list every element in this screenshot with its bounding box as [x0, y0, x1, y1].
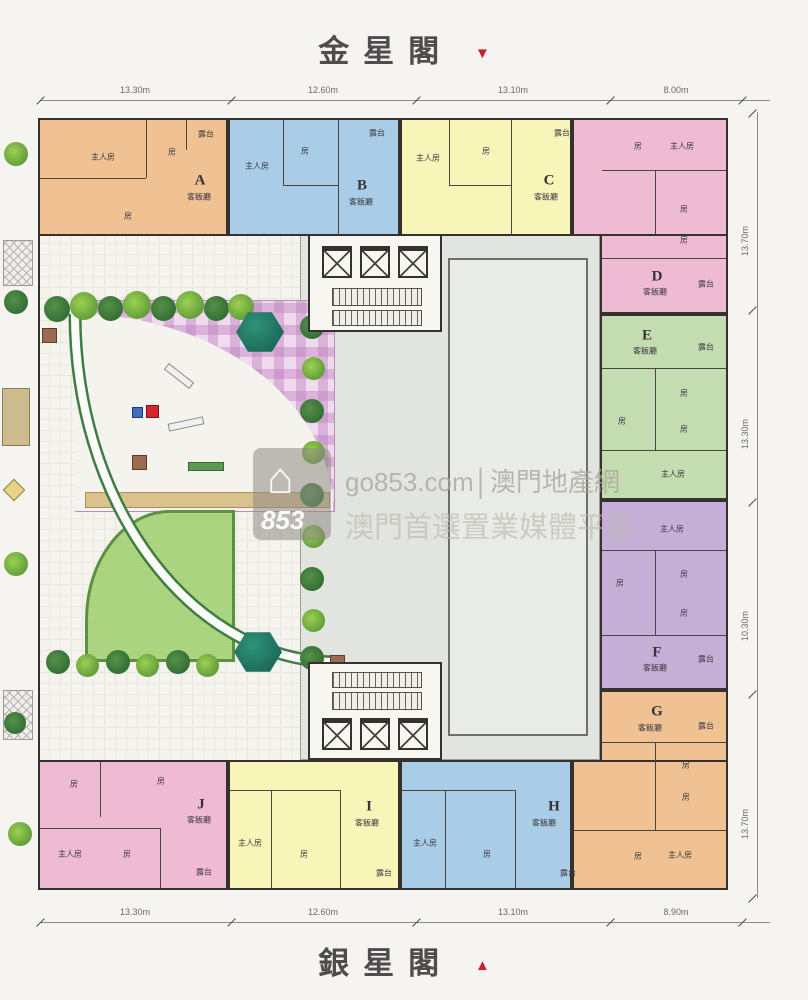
room-label: 客飯廳: [355, 818, 379, 829]
wall: [602, 550, 726, 551]
dim-right-3: 10.30m: [740, 611, 750, 641]
top-title-text: 金星閣: [318, 34, 453, 69]
lift-core-top: [308, 234, 442, 332]
tree: [302, 357, 325, 380]
wall: [602, 170, 726, 171]
feature-paving: [3, 479, 26, 502]
wall: [655, 550, 656, 635]
unit-letter: H: [548, 799, 560, 816]
elevator-shaft: [398, 718, 428, 750]
room-label: 房: [680, 608, 688, 619]
floorplan-page: { "titles": { "top": "金星閣", "bottom": "銀…: [0, 0, 808, 1000]
unit-letter: D: [652, 269, 663, 286]
unit-letter: E: [642, 328, 652, 345]
dim-top-4: 8.00m: [663, 85, 688, 95]
wall: [655, 170, 656, 234]
room-label: 房: [301, 146, 309, 157]
room-label: 露台: [560, 868, 576, 879]
wall: [602, 450, 726, 451]
room-label: 房: [483, 849, 491, 860]
wall: [186, 120, 187, 150]
room-label: 主人房: [413, 838, 437, 849]
wall: [146, 120, 147, 178]
elevator-shaft: [398, 246, 428, 278]
room-label: 房: [157, 776, 165, 787]
tick: [748, 498, 756, 506]
column: [42, 328, 57, 343]
tick: [748, 690, 756, 698]
wall: [40, 828, 160, 829]
dim-right-1: 13.70m: [740, 226, 750, 256]
room-label: 主人房: [245, 161, 269, 172]
dim-top-3: 13.10m: [498, 85, 528, 95]
room-label: 房: [70, 779, 78, 790]
unit-letter: C: [544, 173, 555, 190]
stairs: [332, 672, 422, 688]
room-label: 客飯廳: [187, 815, 211, 826]
wall: [449, 185, 511, 186]
room-label: 露台: [196, 867, 212, 878]
wall: [340, 790, 341, 888]
unit-D: [600, 234, 728, 314]
dimension-line: [40, 100, 770, 101]
tree: [44, 296, 70, 322]
room-label: 主人房: [416, 153, 440, 164]
unit-letter: J: [197, 797, 205, 814]
stairs: [332, 288, 422, 306]
wall: [655, 742, 656, 830]
tick: [748, 109, 756, 117]
elevator-shaft: [322, 718, 352, 750]
unit-letter: B: [357, 178, 367, 195]
dim-bottom-3: 13.10m: [498, 907, 528, 917]
unit-letter: I: [366, 799, 372, 816]
room-label: 房: [123, 849, 131, 860]
room-label: 主人房: [91, 152, 115, 163]
room-label: 露台: [698, 342, 714, 353]
room-label: 房: [680, 569, 688, 580]
room-label: 客飯廳: [187, 192, 211, 203]
dim-top-2: 12.60m: [308, 85, 338, 95]
tree: [4, 142, 28, 166]
wall: [402, 790, 515, 791]
room-label: 房: [680, 388, 688, 399]
wall: [271, 790, 272, 888]
room-label: 房: [634, 851, 642, 862]
dim-top-1: 13.30m: [120, 85, 150, 95]
room-label: 露台: [698, 279, 714, 290]
tree: [300, 483, 324, 507]
room-label: 房: [618, 416, 626, 427]
room-label: 房: [124, 211, 132, 222]
tree: [4, 290, 28, 314]
room-label: 露台: [698, 721, 714, 732]
lift-core-bottom: [308, 662, 442, 760]
tree: [300, 399, 324, 423]
tree: [302, 525, 325, 548]
wall: [602, 742, 726, 743]
tree: [176, 291, 204, 319]
wall: [338, 120, 339, 236]
room-label: 房: [682, 792, 690, 803]
planter: [2, 388, 30, 446]
stairs: [332, 692, 422, 710]
room-label: 房: [680, 235, 688, 246]
tick: [748, 306, 756, 314]
dim-right-4: 13.70m: [740, 809, 750, 839]
wall: [655, 368, 656, 450]
play-equipment: [132, 407, 143, 418]
bottom-building-title: 銀星閣 ▲: [0, 938, 808, 983]
wall: [283, 185, 338, 186]
room-label: 露台: [198, 129, 214, 140]
wall: [283, 120, 284, 185]
room-label: 房: [680, 424, 688, 435]
tree: [196, 654, 219, 677]
room-label: 客飯廳: [534, 192, 558, 203]
wall: [230, 790, 340, 791]
dim-right-2: 13.30m: [740, 419, 750, 449]
tree: [136, 654, 159, 677]
dimension-line: [757, 112, 758, 898]
room-label: 房: [482, 146, 490, 157]
wall: [515, 790, 516, 888]
tree: [151, 296, 176, 321]
tree: [166, 650, 190, 674]
room-label: 露台: [369, 128, 385, 139]
trellis: [3, 240, 33, 286]
room-label: 房: [616, 578, 624, 589]
down-triangle-icon: ▼: [475, 46, 490, 62]
dimension-line: [40, 922, 770, 923]
wall: [445, 790, 446, 888]
room-label: 主人房: [238, 838, 262, 849]
room-label: 露台: [554, 128, 570, 139]
unit-letter: A: [195, 173, 206, 190]
tree: [8, 822, 32, 846]
up-triangle-icon: ▲: [475, 958, 490, 974]
room-label: 主人房: [58, 849, 82, 860]
room-label: 主人房: [670, 141, 694, 152]
wall: [602, 368, 726, 369]
wall: [160, 828, 161, 888]
tree: [4, 552, 28, 576]
tree: [98, 296, 123, 321]
tree: [70, 292, 98, 320]
tree: [4, 712, 26, 734]
wall: [511, 120, 512, 236]
room-label: 客飯廳: [633, 346, 657, 357]
wall: [40, 178, 146, 179]
unit-letter: F: [652, 645, 661, 662]
elevator-shaft: [360, 246, 390, 278]
wall: [602, 258, 726, 259]
bottom-title-text: 銀星閣: [318, 946, 453, 981]
dim-bottom-4: 8.90m: [663, 907, 688, 917]
unit-G: [572, 760, 728, 890]
wall: [602, 635, 726, 636]
unit-letter: G: [651, 704, 663, 721]
tick: [748, 894, 756, 902]
room-label: 客飯廳: [532, 818, 556, 829]
unit-D: [572, 118, 728, 236]
dim-bottom-1: 13.30m: [120, 907, 150, 917]
top-building-title: 金星閣 ▼: [0, 26, 808, 71]
room-label: 房: [168, 147, 176, 158]
room-label: 主人房: [668, 850, 692, 861]
room-label: 主人房: [660, 524, 684, 535]
wall: [574, 830, 726, 831]
play-equipment: [146, 405, 159, 418]
column: [132, 455, 147, 470]
wall: [100, 762, 101, 817]
room-label: 客飯廳: [349, 197, 373, 208]
tree: [302, 441, 325, 464]
room-label: 客飯廳: [643, 663, 667, 674]
room-label: 房: [634, 141, 642, 152]
bench: [188, 462, 224, 471]
room-label: 露台: [698, 654, 714, 665]
stairs: [332, 310, 422, 326]
tree: [76, 654, 99, 677]
elevator-shaft: [322, 246, 352, 278]
elevator-shaft: [360, 718, 390, 750]
room-label: 房: [682, 760, 690, 771]
room-label: 客飯廳: [643, 287, 667, 298]
tree: [46, 650, 70, 674]
wall: [449, 120, 450, 185]
room-label: 主人房: [661, 469, 685, 480]
tree: [302, 609, 325, 632]
room-label: 房: [680, 204, 688, 215]
room-label: 客飯廳: [638, 723, 662, 734]
tree: [123, 291, 151, 319]
room-label: 房: [300, 849, 308, 860]
dim-bottom-2: 12.60m: [308, 907, 338, 917]
room-label: 露台: [376, 868, 392, 879]
tree: [204, 296, 229, 321]
tree: [300, 567, 324, 591]
tree: [106, 650, 130, 674]
